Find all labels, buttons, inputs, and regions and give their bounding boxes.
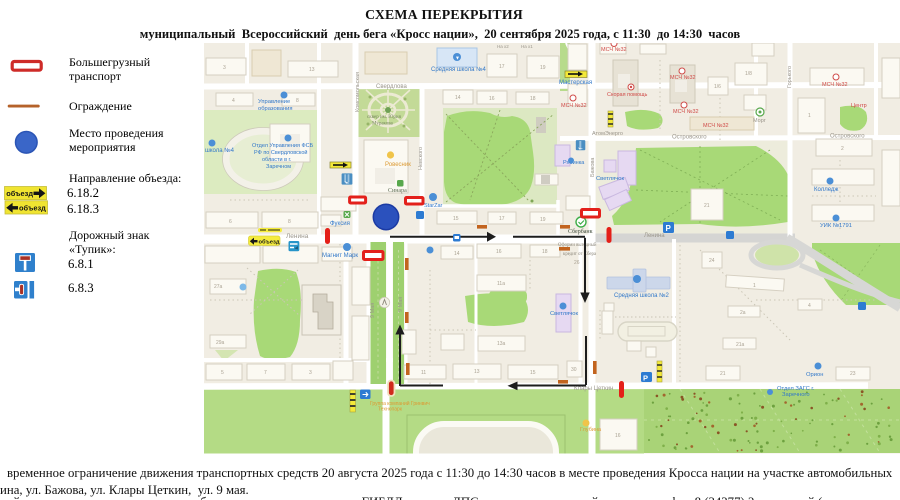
svg-text:P: P (643, 374, 648, 383)
svg-text:2: 2 (841, 146, 844, 152)
svg-text:Светлячок: Светлячок (550, 311, 579, 317)
svg-text:транспорт: транспорт (69, 69, 122, 83)
svg-text:▼: ▼ (455, 57, 460, 62)
svg-text:РФ по Свердловской: РФ по Свердловской (254, 149, 307, 156)
svg-text:1/6: 1/6 (714, 84, 721, 90)
svg-text:11: 11 (421, 370, 426, 376)
svg-text:Рябинка: Рябинка (563, 160, 585, 166)
svg-text:На х1: На х1 (521, 44, 533, 49)
svg-text:Колледж: Колледж (814, 187, 838, 193)
svg-text:Свердлова: Свердлова (376, 84, 408, 90)
svg-text:Ограждение: Ограждение (69, 99, 132, 113)
svg-text:МСЧ №32: МСЧ №32 (703, 123, 729, 129)
svg-text:ной автоинспекции рекомендован: ной автоинспекции рекомендовано обращать… (0, 495, 900, 500)
svg-text:Сбербанк: Сбербанк (568, 228, 593, 235)
svg-text:1: 1 (753, 283, 756, 289)
svg-text:МСЧ №32: МСЧ №32 (561, 103, 587, 109)
svg-text:Место проведения: Место проведения (69, 126, 164, 140)
svg-text:«Тупик»:: «Тупик»: (69, 242, 116, 256)
svg-text:Направление объезда:: Направление объезда: (69, 171, 181, 185)
svg-text:Клары Цеткин: Клары Цеткин (574, 386, 613, 392)
svg-text:Бажова: Бажова (590, 157, 596, 177)
svg-text:19: 19 (540, 217, 546, 223)
svg-text:сквер им. Юрия: сквер им. Юрия (367, 115, 402, 120)
svg-text:17: 17 (499, 64, 505, 70)
svg-text:26: 26 (574, 260, 580, 266)
svg-text:30: 30 (571, 367, 577, 373)
svg-text:6.18.3: 6.18.3 (67, 202, 99, 216)
svg-text:3: 3 (309, 370, 312, 376)
svg-text:16: 16 (496, 249, 502, 255)
svg-text:Островского: Островского (830, 134, 865, 140)
svg-text:образования: образования (258, 106, 293, 112)
svg-text:СХЕМА ПЕРЕКРЫТИЯ: СХЕМА ПЕРЕКРЫТИЯ (365, 7, 523, 22)
svg-text:МСЧ №32: МСЧ №32 (601, 47, 627, 53)
svg-text:3: 3 (223, 65, 226, 71)
svg-text:области в г.: области в г. (262, 157, 292, 163)
svg-text:9 Мая: 9 Мая (398, 297, 404, 312)
svg-text:МСЧ №32: МСЧ №32 (670, 75, 696, 81)
svg-text:Островского: Островского (672, 135, 707, 141)
svg-text:Синара: Синара (388, 188, 407, 194)
svg-text:объезд: объезд (6, 189, 33, 198)
svg-text:21: 21 (704, 203, 710, 209)
svg-text:7: 7 (264, 370, 267, 376)
svg-text:6.8.1: 6.8.1 (68, 257, 94, 271)
svg-text:Орион: Орион (806, 372, 823, 378)
svg-text:StarZar: StarZar (424, 203, 443, 209)
svg-text:9 Мая: 9 Мая (370, 303, 376, 318)
svg-text:Заречном: Заречном (266, 164, 291, 170)
svg-text:15: 15 (453, 216, 459, 222)
svg-text:Ленина: Ленина (286, 233, 309, 240)
svg-text:Средняя школа №2: Средняя школа №2 (614, 292, 670, 299)
svg-text:Заречного: Заречного (782, 392, 810, 398)
svg-text:АтомЭнерго: АтомЭнерго (592, 131, 623, 137)
svg-text:18: 18 (530, 96, 536, 102)
svg-text:Скорая помощь: Скорая помощь (607, 92, 648, 98)
svg-text:2а: 2а (740, 310, 746, 316)
svg-text:МСЧ №32: МСЧ №32 (822, 82, 848, 88)
svg-text:4: 4 (232, 98, 235, 104)
svg-text:18: 18 (542, 249, 548, 255)
svg-text:Невского: Невского (418, 147, 424, 170)
svg-text:4: 4 (808, 303, 811, 309)
svg-text:Морг: Морг (753, 118, 766, 124)
svg-text:13: 13 (309, 67, 315, 73)
svg-text:Дорожный знак: Дорожный знак (69, 228, 150, 242)
svg-text:6: 6 (229, 219, 232, 225)
svg-text:6.8.3: 6.8.3 (68, 281, 94, 295)
svg-text:Технопарк: Технопарк (378, 407, 403, 413)
svg-text:14: 14 (454, 251, 460, 257)
svg-text:Управление: Управление (258, 99, 290, 105)
svg-text:школа №4: школа №4 (205, 147, 235, 154)
svg-text:Фуксия: Фуксия (330, 221, 350, 227)
svg-text:объезд: объезд (259, 239, 280, 246)
svg-text:13а: 13а (497, 341, 506, 347)
svg-text:Ровесник: Ровесник (385, 162, 411, 168)
svg-text:8: 8 (288, 219, 291, 225)
svg-text:временное ограничение движения: временное ограничение движения транспорт… (7, 466, 893, 480)
svg-text:Муракова: Муракова (372, 122, 394, 127)
svg-text:Глубина: Глубина (580, 427, 602, 433)
svg-text:5: 5 (221, 370, 224, 376)
svg-text:Магнит Марк: Магнит Марк (322, 253, 358, 259)
svg-text:17: 17 (499, 216, 505, 222)
svg-text:Комсомольская: Комсомольская (355, 72, 361, 112)
svg-text:P: P (666, 224, 672, 233)
svg-text:1/8: 1/8 (745, 71, 752, 77)
svg-text:21а: 21а (736, 342, 745, 348)
svg-text:15: 15 (530, 370, 536, 376)
svg-text:29а: 29а (216, 340, 225, 346)
svg-text:МСЧ №32: МСЧ №32 (673, 109, 699, 115)
svg-text:Мастерская: Мастерская (559, 80, 592, 86)
svg-text:27а: 27а (214, 284, 223, 290)
svg-text:16: 16 (489, 96, 495, 102)
svg-text:8: 8 (296, 98, 299, 104)
svg-text:кредит от Сбера: кредит от Сбера (563, 252, 597, 257)
svg-text:На х2: На х2 (497, 44, 509, 49)
svg-text:Центр: Центр (851, 103, 867, 109)
svg-text:Горького: Горького (787, 66, 793, 88)
svg-text:21: 21 (720, 371, 726, 377)
svg-text:6.18.2: 6.18.2 (67, 186, 99, 200)
svg-text:23: 23 (850, 371, 856, 377)
svg-text:Ленина: Ленина (644, 233, 665, 239)
svg-text:13: 13 (474, 369, 480, 375)
svg-text:19: 19 (540, 65, 546, 71)
svg-text:11а: 11а (497, 281, 505, 287)
svg-text:16: 16 (615, 433, 621, 439)
svg-text:Светлячок: Светлячок (596, 176, 625, 182)
svg-text:14: 14 (455, 95, 461, 101)
svg-text:объезд: объезд (19, 204, 46, 213)
svg-text:УИК №1791: УИК №1791 (820, 223, 852, 229)
svg-text:Большегрузный: Большегрузный (69, 55, 151, 69)
svg-text:муниципальный Всероссийский: муниципальный Всероссийский день бега «К… (140, 27, 741, 41)
svg-text:1: 1 (808, 113, 811, 119)
svg-text:мероприятия: мероприятия (69, 140, 136, 154)
svg-text:Отдел Управления ФСБ: Отдел Управления ФСБ (252, 143, 314, 149)
svg-text:Средняя школа №4: Средняя школа №4 (431, 66, 487, 73)
svg-text:24: 24 (709, 258, 715, 264)
